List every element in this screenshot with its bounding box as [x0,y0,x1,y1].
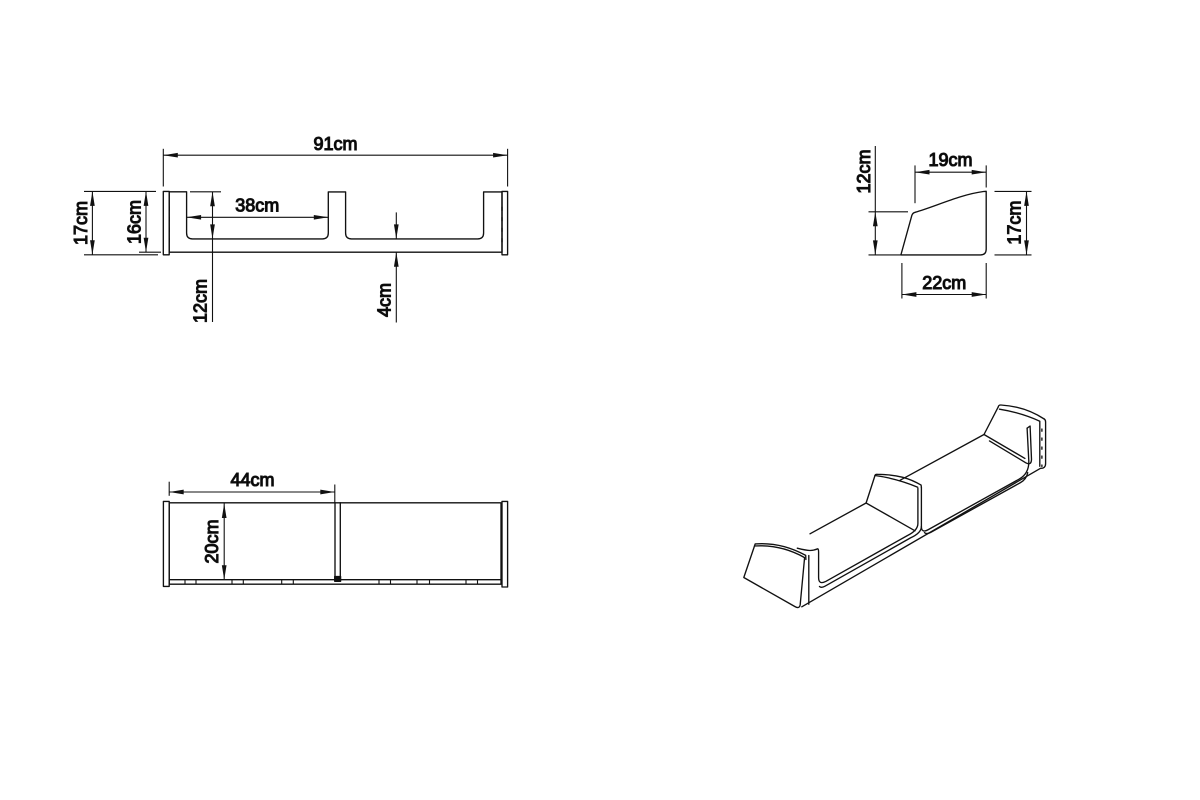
svg-text:17cm: 17cm [71,201,91,245]
svg-text:16cm: 16cm [125,200,145,244]
svg-text:17cm: 17cm [1005,201,1025,245]
svg-text:44cm: 44cm [230,470,274,490]
svg-text:91cm: 91cm [313,134,357,154]
svg-text:4cm: 4cm [375,283,395,317]
svg-text:20cm: 20cm [202,519,222,563]
svg-text:19cm: 19cm [928,150,972,170]
svg-text:22cm: 22cm [922,273,966,293]
svg-text:12cm: 12cm [854,149,874,193]
svg-text:12cm: 12cm [191,279,211,323]
svg-text:38cm: 38cm [235,195,279,215]
